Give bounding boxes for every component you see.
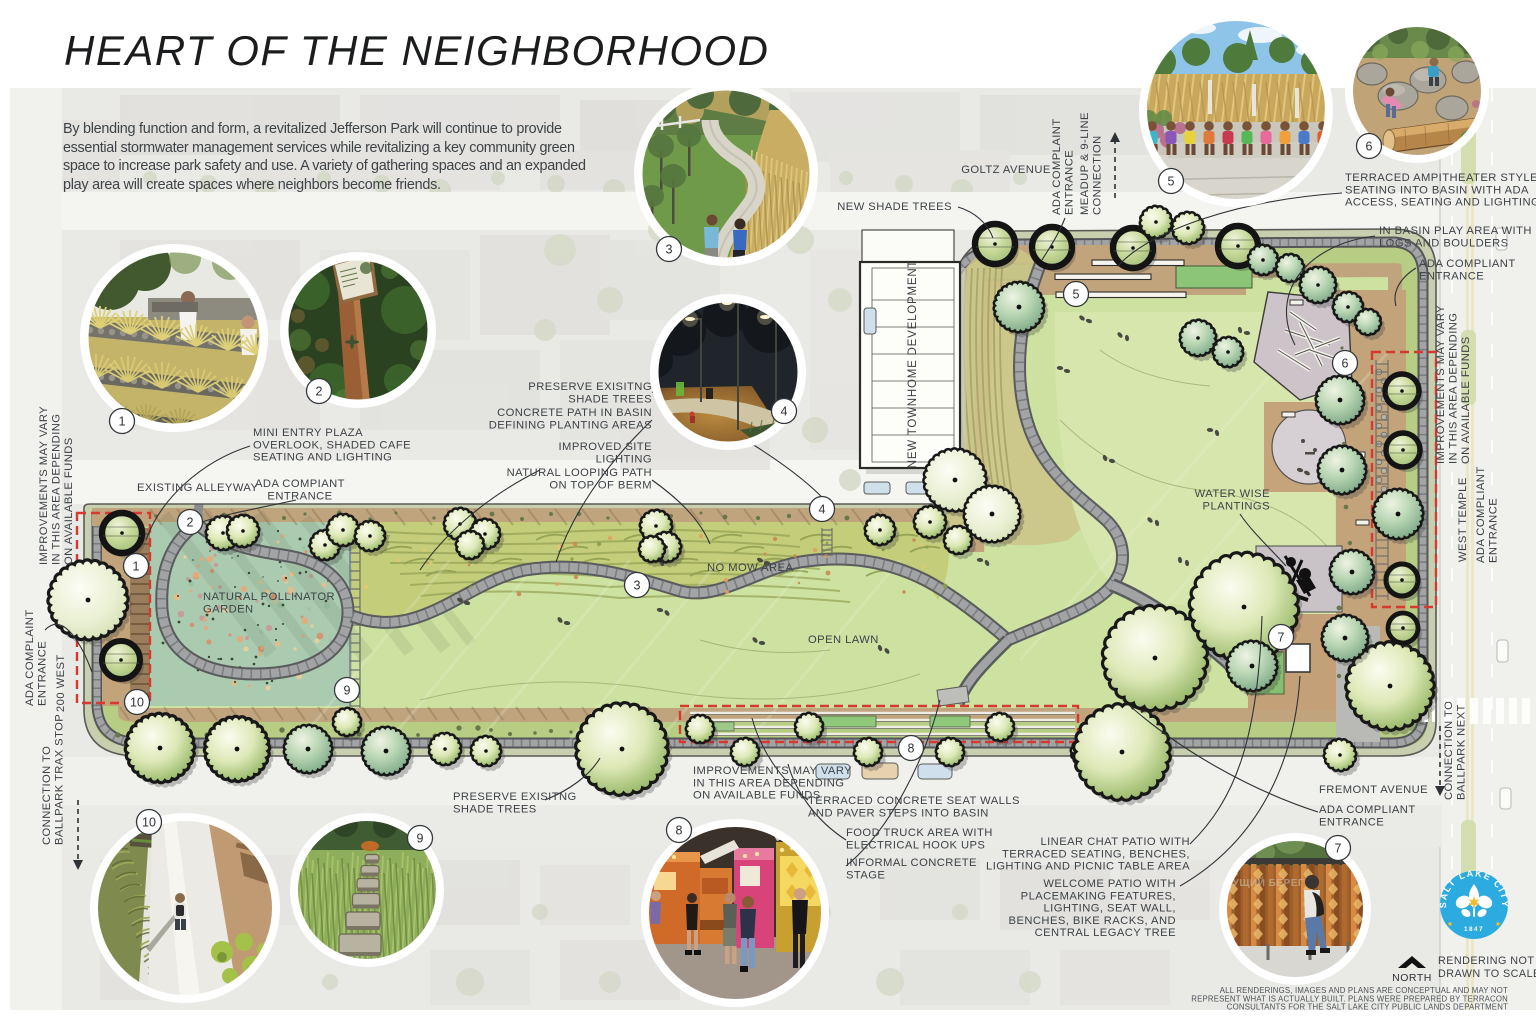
svg-text:NO MOW AREA: NO MOW AREA (707, 562, 793, 574)
svg-text:5: 5 (1073, 287, 1080, 301)
svg-text:PRESERVE EXISITNG: PRESERVE EXISITNG (528, 381, 652, 393)
svg-text:LOGS AND BOULDERS: LOGS AND BOULDERS (1379, 237, 1509, 249)
svg-text:SHADE TREES: SHADE TREES (453, 803, 537, 815)
svg-text:ADA COMPLAINT: ADA COMPLAINT (24, 609, 36, 706)
svg-text:HEART OF THE NEIGHBORHOOD: HEART OF THE NEIGHBORHOOD (64, 27, 768, 74)
svg-text:8: 8 (676, 823, 683, 837)
svg-text:6: 6 (1342, 356, 1349, 370)
svg-text:ACCESS, SEATING AND LIGHTING: ACCESS, SEATING AND LIGHTING (1345, 197, 1536, 209)
svg-text:1: 1 (133, 559, 140, 573)
svg-text:ENTRANCE: ENTRANCE (1487, 498, 1499, 563)
svg-text:CONCRETE PATH IN BASIN: CONCRETE PATH IN BASIN (497, 407, 652, 419)
svg-text:space to increase park safety: space to increase park safety and use. A… (63, 158, 586, 174)
svg-text:4: 4 (819, 502, 826, 516)
svg-text:NATURAL POLLINATOR: NATURAL POLLINATOR (203, 591, 335, 603)
svg-text:CONNECTION TO: CONNECTION TO (41, 746, 53, 845)
svg-text:play area will create spaces w: play area will create spaces where neigh… (63, 177, 441, 193)
svg-text:TERRACED CONCRETE SEAT WALLS: TERRACED CONCRETE SEAT WALLS (808, 795, 1020, 807)
svg-text:IN THIS AREA DEPENDING: IN THIS AREA DEPENDING (51, 414, 63, 565)
svg-text:ENTRANCE: ENTRANCE (36, 641, 48, 706)
svg-text:IMPROVEMENTS MAY VARY: IMPROVEMENTS MAY VARY (1435, 305, 1447, 464)
svg-text:BENCHES, BIKE RACKS, AND: BENCHES, BIKE RACKS, AND (1009, 915, 1176, 927)
svg-text:7: 7 (1278, 630, 1285, 644)
svg-text:ADA COMPLIANT: ADA COMPLIANT (1419, 258, 1516, 270)
svg-text:STAGE: STAGE (846, 869, 885, 881)
svg-text:ADA COMPLIANT: ADA COMPLIANT (1319, 804, 1416, 816)
svg-text:BALLPARK TRAX STOP: BALLPARK TRAX STOP (53, 714, 65, 845)
svg-text:MEADUP & 9-LINE: MEADUP & 9-LINE (1079, 112, 1091, 215)
svg-text:LIGHTING AND PICNIC TABLE AREA: LIGHTING AND PICNIC TABLE AREA (986, 861, 1190, 873)
svg-text:INFORMAL CONCRETE: INFORMAL CONCRETE (846, 857, 977, 869)
svg-text:MINI ENTRY PLAZA: MINI ENTRY PLAZA (253, 427, 363, 439)
svg-text:PRESERVE EXISITNG: PRESERVE EXISITNG (453, 791, 577, 803)
svg-text:ELECTRICAL HOOK UPS: ELECTRICAL HOOK UPS (846, 839, 985, 851)
svg-text:GOLTZ AVENUE: GOLTZ AVENUE (961, 164, 1051, 176)
svg-text:9: 9 (344, 683, 351, 697)
svg-text:10: 10 (142, 815, 156, 829)
svg-text:FREMONT AVENUE: FREMONT AVENUE (1319, 784, 1428, 796)
svg-text:TERRACED SEATING, BENCHES,: TERRACED SEATING, BENCHES, (1002, 848, 1190, 860)
svg-text:IMPROVEMENTS MAY VARY: IMPROVEMENTS MAY VARY (693, 765, 852, 777)
svg-text:200 WEST: 200 WEST (55, 654, 67, 712)
svg-text:NATURAL LOOPING PATH: NATURAL LOOPING PATH (507, 467, 652, 479)
svg-text:By blending function and form,: By blending function and form, a revital… (63, 121, 562, 137)
svg-text:10: 10 (130, 695, 144, 709)
svg-text:IMPROVED SITE: IMPROVED SITE (559, 441, 653, 453)
svg-text:1: 1 (119, 414, 126, 428)
svg-text:SEATING AND LIGHTING: SEATING AND LIGHTING (253, 452, 392, 464)
svg-text:WELCOME PATIO WITH: WELCOME PATIO WITH (1043, 878, 1176, 890)
svg-text:6: 6 (1366, 139, 1373, 153)
svg-text:LIGHTING: LIGHTING (596, 453, 652, 465)
svg-text:ENTRANCE: ENTRANCE (1063, 150, 1075, 215)
svg-text:IMPROVEMENTS MAY VARY: IMPROVEMENTS MAY VARY (38, 406, 50, 565)
svg-text:1847: 1847 (1464, 926, 1484, 933)
svg-text:ENTRANCE: ENTRANCE (1419, 270, 1484, 282)
svg-text:7: 7 (1335, 841, 1342, 855)
svg-text:EXISTING ALLEYWAY: EXISTING ALLEYWAY (137, 482, 259, 494)
svg-text:NEW TOWNHOME DEVELOPMENT: NEW TOWNHOME DEVELOPMENT (907, 260, 919, 469)
svg-text:CONNECTION TO: CONNECTION TO (1443, 701, 1455, 800)
svg-text:IN THIS AREA DEPENDING: IN THIS AREA DEPENDING (1448, 313, 1460, 464)
svg-text:ON TOP OF BERM: ON TOP OF BERM (549, 479, 652, 491)
svg-text:RENDERING NOT: RENDERING NOT (1438, 955, 1534, 967)
svg-text:3: 3 (666, 242, 673, 256)
svg-text:SHADE TREES: SHADE TREES (568, 393, 652, 405)
svg-text:2: 2 (316, 384, 323, 398)
svg-text:PLANTINGS: PLANTINGS (1203, 500, 1270, 512)
svg-text:IN BASIN PLAY AREA WITH: IN BASIN PLAY AREA WITH (1379, 225, 1532, 237)
svg-text:essential stormwater managemen: essential stormwater management services… (63, 140, 575, 156)
svg-text:AND PAVER STEPS INTO BASIN: AND PAVER STEPS INTO BASIN (808, 807, 989, 819)
svg-text:GARDEN: GARDEN (203, 603, 254, 615)
svg-text:3: 3 (634, 578, 641, 592)
svg-text:TERRACED AMPITHEATER STYLE: TERRACED AMPITHEATER STYLE (1345, 172, 1536, 184)
svg-text:ТУЩИЙ БЕРЕГ: ТУЩИЙ БЕРЕГ (1226, 876, 1304, 889)
svg-text:OPEN LAWN: OPEN LAWN (808, 634, 879, 646)
svg-text:DRAWN TO SCALE: DRAWN TO SCALE (1438, 968, 1536, 980)
svg-text:BALLPARK NEXT: BALLPARK NEXT (1455, 704, 1467, 800)
svg-text:LIGHTING, SEAT WALL,: LIGHTING, SEAT WALL, (1043, 903, 1176, 915)
svg-text:WATER WISE: WATER WISE (1195, 488, 1270, 500)
svg-text:NORTH: NORTH (1392, 972, 1432, 984)
svg-text:CONNECTION: CONNECTION (1091, 135, 1103, 215)
svg-text:ON AVAILABLE FUNDS: ON AVAILABLE FUNDS (63, 437, 75, 565)
svg-text:ADA COMPLAINT: ADA COMPLAINT (1051, 118, 1063, 215)
svg-text:ADA COMPIANT: ADA COMPIANT (255, 478, 345, 490)
svg-text:5: 5 (1168, 174, 1175, 188)
svg-text:ON AVAILABLE FUNDS: ON AVAILABLE FUNDS (1460, 336, 1472, 464)
svg-text:ON AVAILABLE FUNDS: ON AVAILABLE FUNDS (693, 790, 821, 802)
svg-text:FOOD TRUCK AREA WITH: FOOD TRUCK AREA WITH (846, 827, 993, 839)
svg-text:ENTRANCE: ENTRANCE (267, 490, 332, 502)
svg-text:IN THIS AREA DEPENDING: IN THIS AREA DEPENDING (693, 777, 844, 789)
svg-text:PLACEMAKING FEATURES,: PLACEMAKING FEATURES, (1021, 890, 1176, 902)
svg-text:SEATING INTO BASIN WITH ADA: SEATING INTO BASIN WITH ADA (1345, 184, 1529, 196)
svg-text:8: 8 (908, 741, 915, 755)
svg-text:2: 2 (187, 515, 194, 529)
svg-text:WEST TEMPLE: WEST TEMPLE (1457, 477, 1469, 562)
svg-text:4: 4 (781, 404, 788, 418)
svg-text:OVERLOOK, SHADED CAFE: OVERLOOK, SHADED CAFE (253, 439, 411, 451)
svg-text:ENTRANCE: ENTRANCE (1319, 816, 1384, 828)
svg-text:ADA COMPLIANT: ADA COMPLIANT (1475, 466, 1487, 563)
svg-text:DEFINING PLANTING AREAS: DEFINING PLANTING AREAS (489, 419, 652, 431)
svg-text:9: 9 (417, 831, 424, 845)
svg-text:NEW SHADE TREES: NEW SHADE TREES (837, 201, 952, 213)
svg-text:LINEAR CHAT PATIO WITH: LINEAR CHAT PATIO WITH (1040, 836, 1190, 848)
svg-text:CONSULTANTS FOR THE SALT LAKE: CONSULTANTS FOR THE SALT LAKE CITY PUBLI… (1227, 1003, 1508, 1012)
svg-text:CENTRAL LEGACY TREE: CENTRAL LEGACY TREE (1035, 927, 1176, 939)
